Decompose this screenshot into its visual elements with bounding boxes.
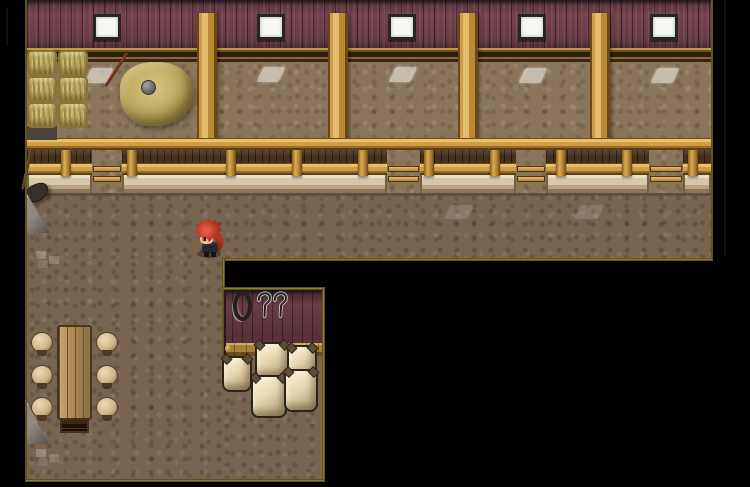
grain-sack (222, 356, 252, 392)
fence-post (490, 148, 500, 176)
fence-plank-strip (420, 150, 516, 163)
stone-ledge (546, 175, 649, 193)
gate-bar (93, 166, 121, 172)
game-viewport[interactable] (0, 0, 750, 487)
fence-plank-strip (27, 150, 92, 163)
map-border-bottom (25, 479, 325, 482)
window (650, 14, 678, 40)
grain-sack (284, 369, 318, 412)
grain-sack (251, 375, 287, 418)
gate-bar (517, 176, 545, 182)
fence-plank-strip (122, 150, 387, 163)
fence-post (292, 148, 302, 176)
player-eye (204, 237, 206, 241)
player-leg (204, 252, 209, 257)
stone-ledge (683, 175, 711, 193)
stone-ledge (420, 175, 516, 193)
stool (31, 397, 53, 418)
window (518, 14, 546, 40)
fence-post (226, 148, 236, 176)
hay-bale (27, 102, 57, 128)
stone-marks (36, 449, 46, 457)
stool (31, 365, 53, 386)
stool (96, 365, 118, 386)
gate-bar (650, 166, 682, 172)
gate-bar (388, 166, 419, 172)
player-leg (211, 252, 216, 257)
stone-ledge (122, 175, 387, 193)
sickle-icon (272, 289, 289, 320)
gate-bar (650, 176, 682, 182)
hay-bale (27, 50, 57, 76)
trim-knob (225, 345, 231, 352)
map-border-left (25, 0, 27, 481)
window (93, 14, 121, 40)
map-border-floor-bottom (222, 258, 713, 261)
hay-bale (58, 102, 88, 128)
fence-post (61, 148, 71, 176)
fence-post (424, 148, 434, 176)
rope-coil (233, 291, 252, 321)
window (388, 14, 416, 40)
fence-lower-rail (420, 163, 516, 175)
wooden-table (57, 325, 92, 420)
fence-top-rail (27, 138, 711, 150)
gate-bar (517, 166, 545, 172)
gate-bar (388, 176, 419, 182)
hay-bale (58, 50, 88, 76)
pitchfork-head (141, 80, 156, 95)
wall-ceiling-shadow (27, 0, 711, 6)
stool (96, 397, 118, 418)
map-border-storage-top (222, 287, 325, 290)
stool (31, 332, 53, 353)
fence-post (622, 148, 632, 176)
fence-post (556, 148, 566, 176)
map-border-storage-right (322, 287, 325, 482)
margin-line (6, 8, 8, 46)
dark-tile (27, 126, 57, 140)
fence-lower-rail (27, 163, 92, 175)
gate-bar (93, 176, 121, 182)
stool (96, 332, 118, 353)
hay-bale (27, 76, 57, 102)
fence-post (358, 148, 368, 176)
table-base (60, 418, 89, 433)
margin-line (724, 0, 726, 256)
fence-lower-rail (122, 163, 387, 175)
stable-floor[interactable] (27, 193, 711, 259)
sickle-icon (256, 289, 273, 320)
window (257, 14, 285, 40)
stone-marks (36, 251, 46, 259)
ledge-shadow (27, 193, 711, 196)
map-border-notch-left (222, 258, 225, 290)
fence-post (127, 148, 137, 176)
hay-bale (58, 76, 88, 102)
fence-post (688, 148, 698, 176)
map-border-right (711, 0, 713, 261)
